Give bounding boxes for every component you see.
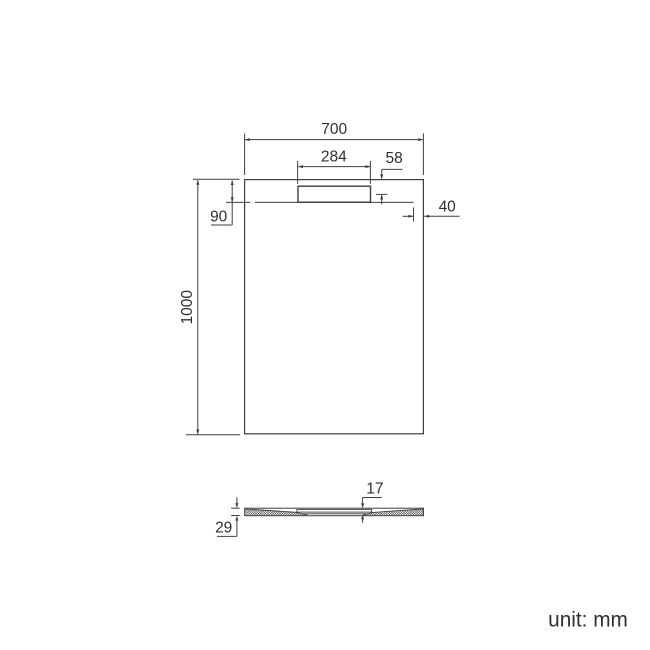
- svg-text:29: 29: [215, 520, 232, 537]
- svg-text:1000: 1000: [179, 290, 196, 325]
- svg-text:284: 284: [321, 148, 347, 165]
- svg-text:unit: mm: unit: mm: [548, 608, 628, 631]
- svg-text:40: 40: [439, 198, 457, 215]
- svg-text:700: 700: [321, 121, 347, 138]
- svg-text:17: 17: [366, 480, 383, 497]
- svg-text:58: 58: [385, 150, 402, 167]
- svg-text:90: 90: [210, 208, 228, 225]
